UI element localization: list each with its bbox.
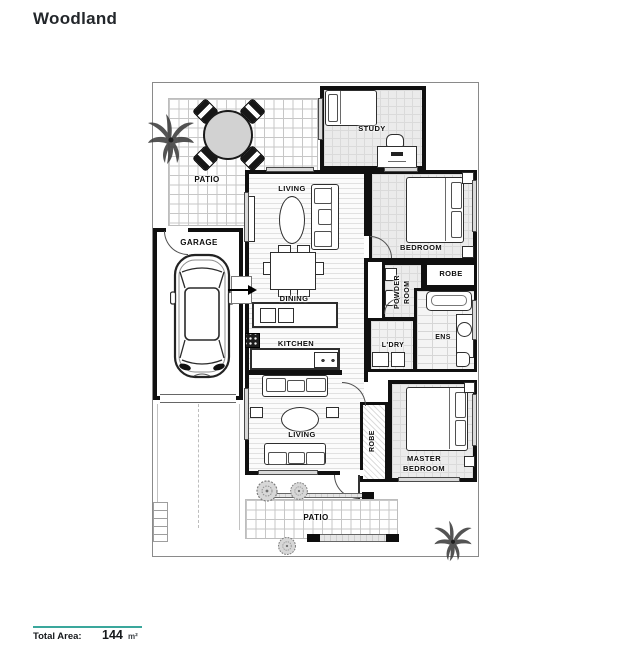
dining-chair-icon (315, 262, 324, 275)
window (258, 470, 318, 475)
sofa-icon (262, 375, 328, 397)
window (472, 394, 477, 446)
palm-tree-icon (428, 520, 478, 562)
label-living-rear: LIVING (278, 430, 326, 439)
sink-icon (260, 308, 276, 323)
sink-icon (278, 308, 294, 323)
floor-plan-page: Woodland (0, 0, 617, 650)
label-powder-room-2: ROOM (404, 268, 411, 316)
bedside-table-icon (464, 382, 475, 393)
total-area-unit: m² (128, 632, 138, 641)
driveway-edge (239, 404, 240, 530)
shrub-icon (289, 479, 309, 503)
side-steps (153, 502, 168, 542)
patio-step-cap (307, 534, 320, 542)
laundry-tub-icon (391, 352, 405, 367)
window (318, 98, 323, 140)
label-robe-upper: ROBE (430, 269, 472, 278)
label-patio-top: PATIO (180, 175, 234, 184)
label-study: STUDY (352, 124, 392, 133)
stove-icon (314, 352, 338, 368)
label-powder-room: POWDER (394, 268, 401, 316)
desk-icon (377, 146, 417, 168)
kitchen-bench-icon (252, 302, 338, 328)
porch-step (274, 493, 362, 498)
window (384, 167, 418, 172)
label-patio-bottom: PATIO (292, 513, 340, 522)
label-garage: GARAGE (171, 238, 227, 247)
dining-table-icon (270, 252, 316, 290)
sofa-icon (311, 184, 339, 250)
toilet-icon (456, 352, 470, 367)
shrub-icon (255, 478, 279, 504)
label-dining: DINING (272, 294, 316, 303)
footer-accent-line (33, 626, 142, 628)
shrub-icon (276, 535, 298, 557)
label-robe-master: ROBE (369, 416, 376, 466)
label-master-line1: MASTER (396, 454, 452, 463)
sofa-icon (264, 443, 326, 465)
bedside-table-icon (464, 456, 475, 467)
porch-post (362, 492, 374, 499)
single-bed-icon (325, 90, 377, 126)
kitchen-bench-icon (250, 348, 340, 370)
label-living-front: LIVING (268, 184, 316, 193)
palm-tree-icon (147, 113, 195, 165)
entry-arrow-icon (226, 284, 258, 296)
driveway-centerline (198, 404, 199, 528)
label-kitchen: KITCHEN (268, 339, 324, 348)
coffee-table-icon (279, 196, 305, 244)
car-icon (170, 250, 234, 382)
double-bed-icon (406, 177, 464, 243)
patio-step-cap (386, 534, 399, 542)
side-table-icon (326, 407, 339, 418)
patio-table-icon (203, 110, 253, 160)
door-gap (364, 236, 369, 258)
window (472, 300, 477, 340)
label-ensuite: ENS (428, 334, 458, 341)
bedside-table-icon (462, 246, 474, 258)
side-table-icon (250, 407, 263, 418)
bathtub-icon (426, 291, 472, 311)
basin-icon (457, 322, 472, 337)
total-area-label: Total Area: (33, 631, 82, 642)
window (398, 477, 460, 482)
total-area-value: 144 (102, 628, 123, 642)
page-title: Woodland (33, 9, 117, 29)
window (472, 180, 477, 232)
window (244, 388, 249, 440)
meter-box-icon (245, 333, 260, 348)
label-laundry: L'DRY (374, 342, 412, 349)
window (266, 167, 314, 172)
window (244, 192, 249, 242)
label-master-line2: BEDROOM (392, 464, 456, 473)
label-bedroom: BEDROOM (394, 243, 448, 252)
washer-icon (372, 352, 389, 367)
garage-door-icon (160, 394, 236, 403)
double-bed-icon (406, 387, 468, 451)
coffee-table-icon (281, 407, 319, 432)
